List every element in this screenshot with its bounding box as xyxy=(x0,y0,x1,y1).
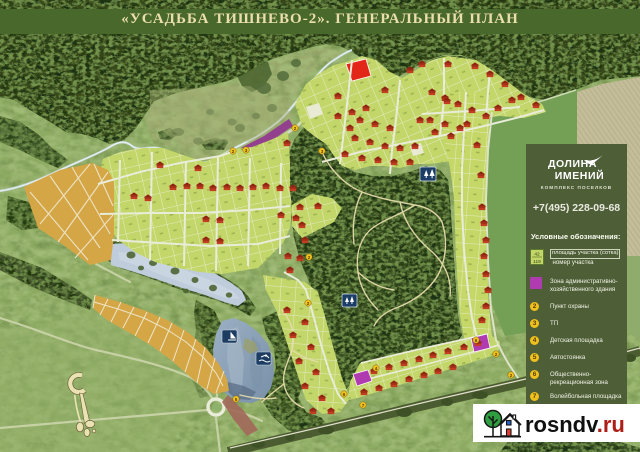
svg-text:42: 42 xyxy=(534,251,540,257)
svg-text:4: 4 xyxy=(375,366,378,371)
svg-text:6: 6 xyxy=(475,338,478,343)
svg-text:3: 3 xyxy=(245,148,248,153)
svg-text:2: 2 xyxy=(294,126,297,131)
svg-text:5: 5 xyxy=(235,397,238,402)
svg-text:2: 2 xyxy=(307,301,310,306)
svg-text:3: 3 xyxy=(321,149,324,154)
svg-text:2: 2 xyxy=(510,373,513,378)
svg-text:7: 7 xyxy=(362,403,365,408)
svg-text:119: 119 xyxy=(533,259,541,265)
svg-text:6: 6 xyxy=(343,392,346,397)
svg-text:2: 2 xyxy=(495,352,498,357)
svg-text:2: 2 xyxy=(308,255,311,260)
svg-text:2: 2 xyxy=(232,149,235,154)
